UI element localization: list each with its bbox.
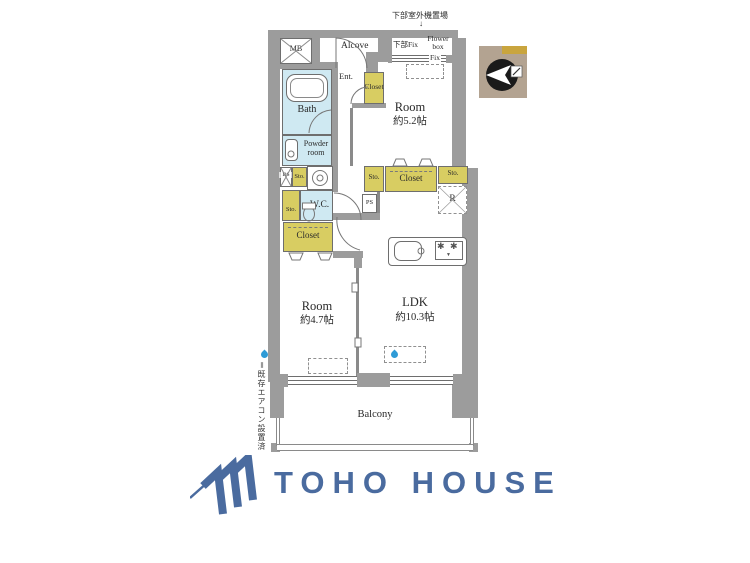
hanger-mark: [419, 159, 433, 166]
compass-corner-tick: [513, 68, 520, 75]
hanger-mark: [318, 253, 332, 260]
meter-box-label: MB: [280, 45, 312, 54]
hanger-mark: [393, 159, 407, 166]
logo-chevron: [233, 458, 253, 500]
logo-chevron: [203, 472, 223, 514]
compass-corner-box: [511, 66, 522, 77]
room47-size: 約4.7帖: [285, 315, 349, 327]
room52-name: Room: [374, 101, 446, 115]
powder-room-label: Powder room: [297, 140, 335, 158]
balcony-label: Balcony: [340, 409, 410, 421]
wall-left: [268, 30, 280, 382]
wall-window-pier: [357, 373, 390, 387]
storage-row-right-label: Sto.: [438, 170, 468, 178]
burner-icon: ✱: [437, 242, 445, 252]
wall-right-upper: [452, 38, 466, 168]
balcony-wall-right: [452, 382, 478, 418]
wall-alcove-room: [366, 52, 378, 72]
compass-gold-bar: [502, 46, 527, 54]
closet-rod: [288, 227, 328, 228]
wall-hall-ldk: [332, 213, 380, 220]
ac-spot-room52: [406, 64, 444, 79]
balcony-rail-left: [276, 418, 280, 446]
lower-fix-label: 下部Fix: [393, 41, 418, 49]
ac-installed-note: ＝既存エアコン設置済: [256, 361, 267, 461]
balcony-rail-bottom: [277, 444, 473, 451]
ldk-name: LDK: [382, 296, 448, 310]
alcove-label: Alcove: [341, 41, 368, 51]
balcony-window-left: [288, 376, 357, 385]
floor-plan-page: 下部室外機置場 ↓ MB Alcove 下部Fix Flower box Fix…: [0, 0, 750, 563]
grill-icon: ▼: [446, 253, 451, 259]
storage-row-left-label: Sto.: [363, 174, 385, 182]
entrance-label: Ent.: [339, 72, 353, 81]
storage-laundry-label: Sto.: [291, 173, 308, 180]
compass: [479, 46, 527, 98]
toho-house-logo-text: TOHO HOUSE: [274, 465, 562, 501]
wall-partition-head: [354, 256, 362, 268]
flower-box-label: Flower box: [421, 35, 455, 52]
balcony-rail-right: [470, 418, 474, 446]
down-arrow-icon: ↓: [419, 20, 423, 29]
balcony-window-right: [390, 376, 453, 385]
ldk-size: 約10.3帖: [382, 312, 448, 324]
bathtub-inner: [290, 78, 324, 98]
closet-row-rod: [390, 171, 432, 172]
kitchen-sink: [394, 241, 422, 261]
closet-hall-label: Closet: [283, 231, 333, 241]
hanger-mark: [289, 253, 303, 260]
pipe-space-label: PS: [361, 199, 378, 206]
fridge-label: R: [438, 194, 467, 204]
wall-room52-west: [350, 108, 353, 166]
fix-label: Fix: [429, 54, 441, 62]
wall-top-left: [268, 30, 390, 38]
toilet-room-label: W.C.: [310, 200, 329, 210]
ac-spot-room47: [308, 358, 348, 374]
entrance-closet-label: Closet: [346, 83, 402, 91]
ldk-door-arc: [337, 217, 360, 250]
storage-wc-label: Sto.: [281, 206, 301, 213]
compass-plate: [479, 46, 527, 98]
logo-roof-line: [190, 482, 208, 498]
toho-house-logo-mark: [190, 455, 270, 519]
balcony-wall-left: [270, 382, 284, 418]
closet-row-label: Closet: [385, 174, 437, 184]
washer-space: [307, 166, 333, 190]
room52-size: 約5.2帖: [374, 116, 446, 128]
burner-icon: ✱: [450, 242, 458, 252]
logo-chevron: [218, 465, 238, 507]
bath-label: Bath: [282, 104, 332, 115]
north-arrow-icon: [486, 65, 511, 85]
room47-name: Room: [285, 300, 349, 314]
partition-sliding-door: [356, 268, 359, 376]
compass-circle: [486, 59, 518, 91]
